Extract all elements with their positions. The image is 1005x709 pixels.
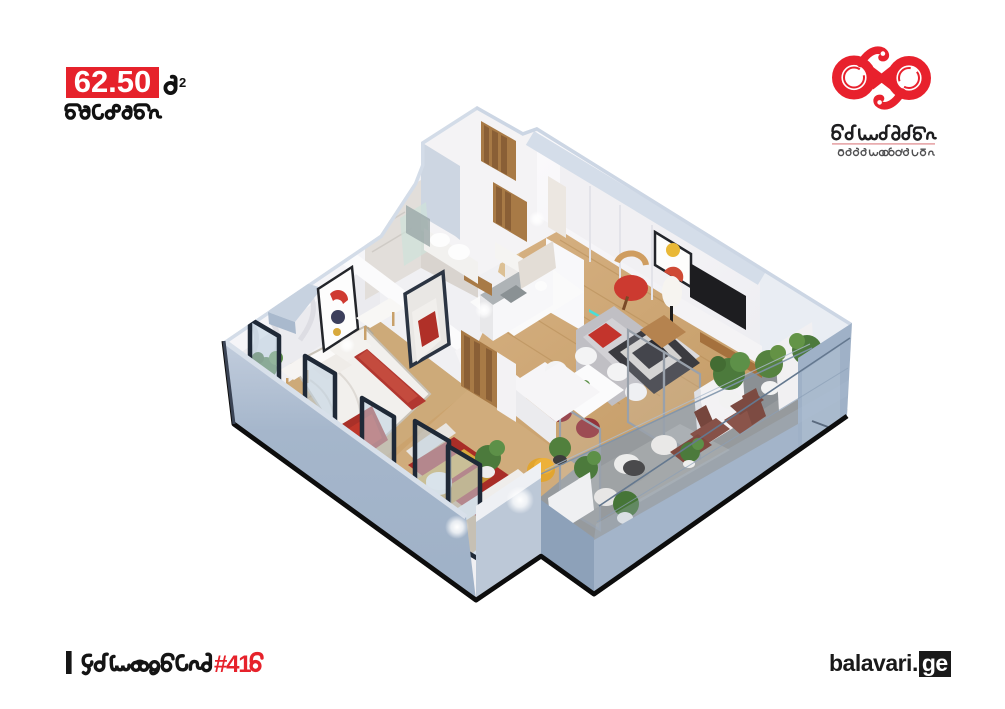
svg-text:#41: #41 bbox=[214, 651, 251, 678]
svg-text:2: 2 bbox=[179, 75, 186, 90]
